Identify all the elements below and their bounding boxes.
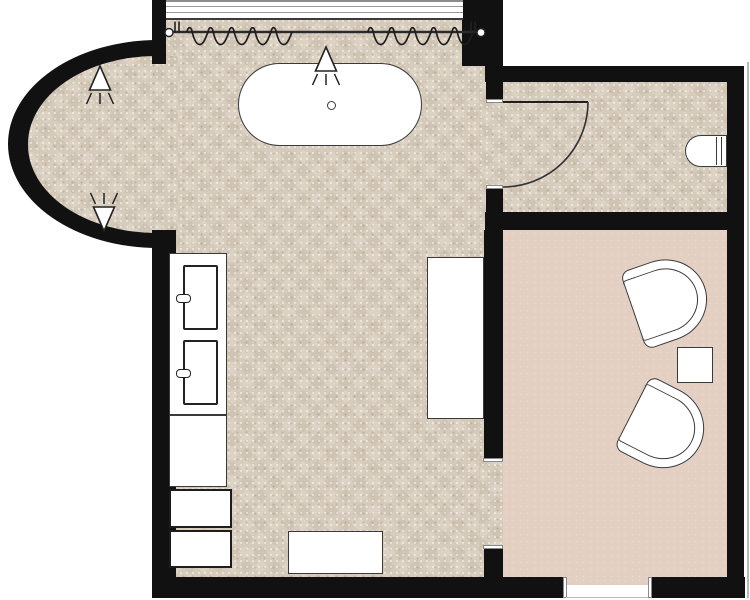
wall-below-passage: [484, 549, 503, 578]
entry-sill-floor: [566, 577, 648, 585]
passage-floor: [480, 456, 503, 550]
faucet-icon: [176, 369, 191, 378]
spotlight-icon: [311, 45, 341, 87]
curtain-finial-right: [477, 29, 485, 37]
entry-jamb: [563, 577, 567, 598]
curtain-finial-left: [165, 29, 173, 37]
faucet-icon: [176, 294, 191, 303]
spotlight-icon: [85, 64, 115, 106]
side-table: [677, 347, 713, 383]
window-outer-line: [166, 0, 463, 2]
tub-drain-icon: [327, 101, 336, 110]
entry-outer-line: [566, 597, 648, 598]
toilet-tank-line: [721, 137, 722, 165]
vanity-counter-lower: [169, 415, 227, 487]
window-glass-line-1: [166, 6, 463, 7]
wall-wc-top: [485, 66, 744, 82]
curtain-panel-right: [368, 28, 473, 45]
toilet: [685, 135, 727, 167]
wall-wc-bottom: [485, 212, 744, 230]
passage-threshold: [483, 458, 503, 462]
door-swing-arc: [495, 95, 595, 195]
wall-bottom-left: [152, 577, 564, 598]
window-glass-line-2: [166, 12, 463, 13]
spotlight-icon: [89, 191, 119, 233]
bath-mat: [288, 531, 383, 574]
storage-cabinet: [427, 257, 484, 419]
entry-jamb: [648, 577, 652, 598]
wall-bottom-right: [650, 577, 745, 598]
base-drawer: [169, 530, 232, 568]
floor-plan: [0, 0, 750, 600]
passage-threshold: [483, 545, 503, 549]
wall-between-rooms: [484, 230, 503, 460]
toilet-tank-line: [716, 137, 717, 165]
outer-face-line: [747, 62, 749, 598]
wall-right-outer: [727, 66, 744, 597]
curtain-panel-left: [187, 28, 292, 45]
base-drawer: [169, 489, 232, 528]
